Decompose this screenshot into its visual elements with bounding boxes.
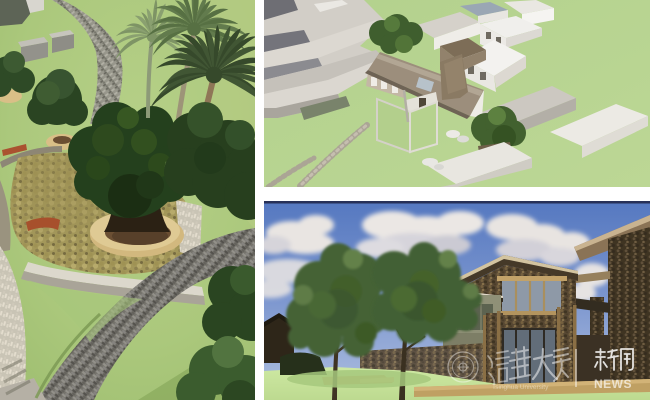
- svg-text:Tsinghua University: Tsinghua University: [492, 384, 549, 391]
- svg-text:NEWS: NEWS: [594, 377, 632, 391]
